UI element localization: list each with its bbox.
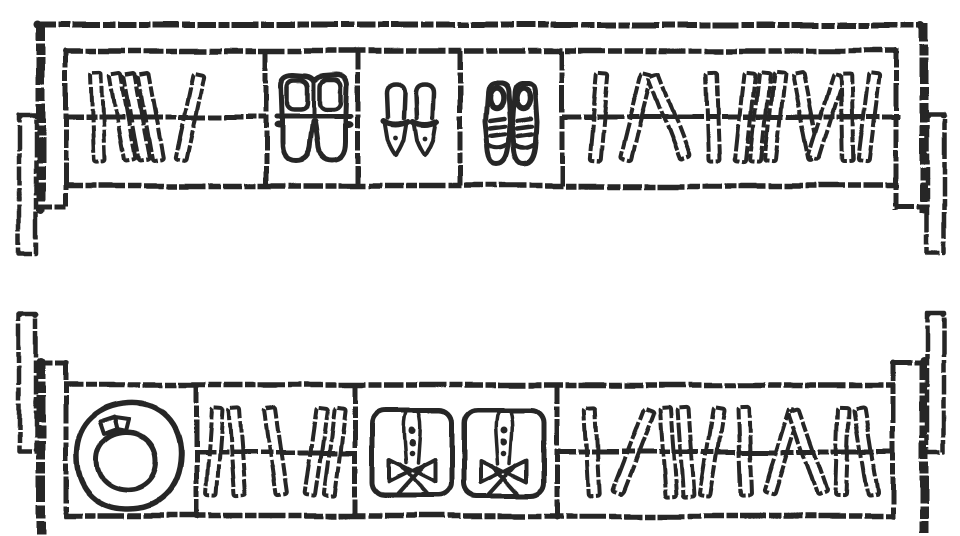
joint-dot: [940, 112, 946, 118]
joint-dot: [37, 205, 46, 214]
folded-shirt-right: [464, 410, 544, 496]
joint-dot: [925, 112, 931, 118]
joint-dot: [920, 358, 929, 367]
left-bracket: [19, 313, 36, 452]
compartment-boots: [274, 75, 354, 160]
hat: [77, 403, 181, 509]
joint-dot: [63, 48, 69, 54]
upper-shelf-unit: [17, 21, 946, 253]
joint-dot: [33, 311, 39, 317]
joint-dot: [33, 112, 39, 118]
joint-dot: [920, 205, 929, 214]
compartment-books-2: [562, 73, 900, 162]
joint-dot: [890, 360, 896, 366]
sneaker-left: [485, 83, 510, 164]
joint-dot: [193, 513, 200, 520]
right-bracket: [927, 114, 944, 253]
compartment-sneakers: [485, 83, 537, 164]
joint-dot: [34, 21, 42, 29]
joint-dot: [63, 360, 69, 366]
boots-pair: [274, 75, 354, 160]
compartment-books-1: [64, 73, 266, 162]
joint-dot: [37, 358, 46, 367]
joint-dot: [17, 112, 23, 118]
left-bracket: [19, 114, 36, 253]
joint-dot: [17, 311, 23, 317]
compartment-shirts: [372, 410, 544, 496]
compartment-hat: [77, 403, 181, 509]
compartment-heels: [384, 84, 437, 155]
folded-shirt-left: [372, 410, 452, 496]
compartment-books-4: [557, 408, 895, 497]
joint-dot: [925, 311, 931, 317]
sketch-root: [17, 21, 946, 534]
compartment-books-3: [196, 408, 355, 497]
joint-dot: [893, 48, 899, 54]
closet-shelf-sketch: [0, 0, 960, 536]
joint-dot: [917, 21, 925, 29]
joint-dot: [554, 513, 561, 520]
lower-shelf-unit: [17, 311, 946, 534]
sneaker-right: [512, 83, 537, 164]
heel-shoe-right: [413, 84, 437, 155]
joint-dot: [940, 311, 946, 317]
right-bracket: [927, 313, 944, 453]
heel-shoe-left: [384, 84, 408, 155]
